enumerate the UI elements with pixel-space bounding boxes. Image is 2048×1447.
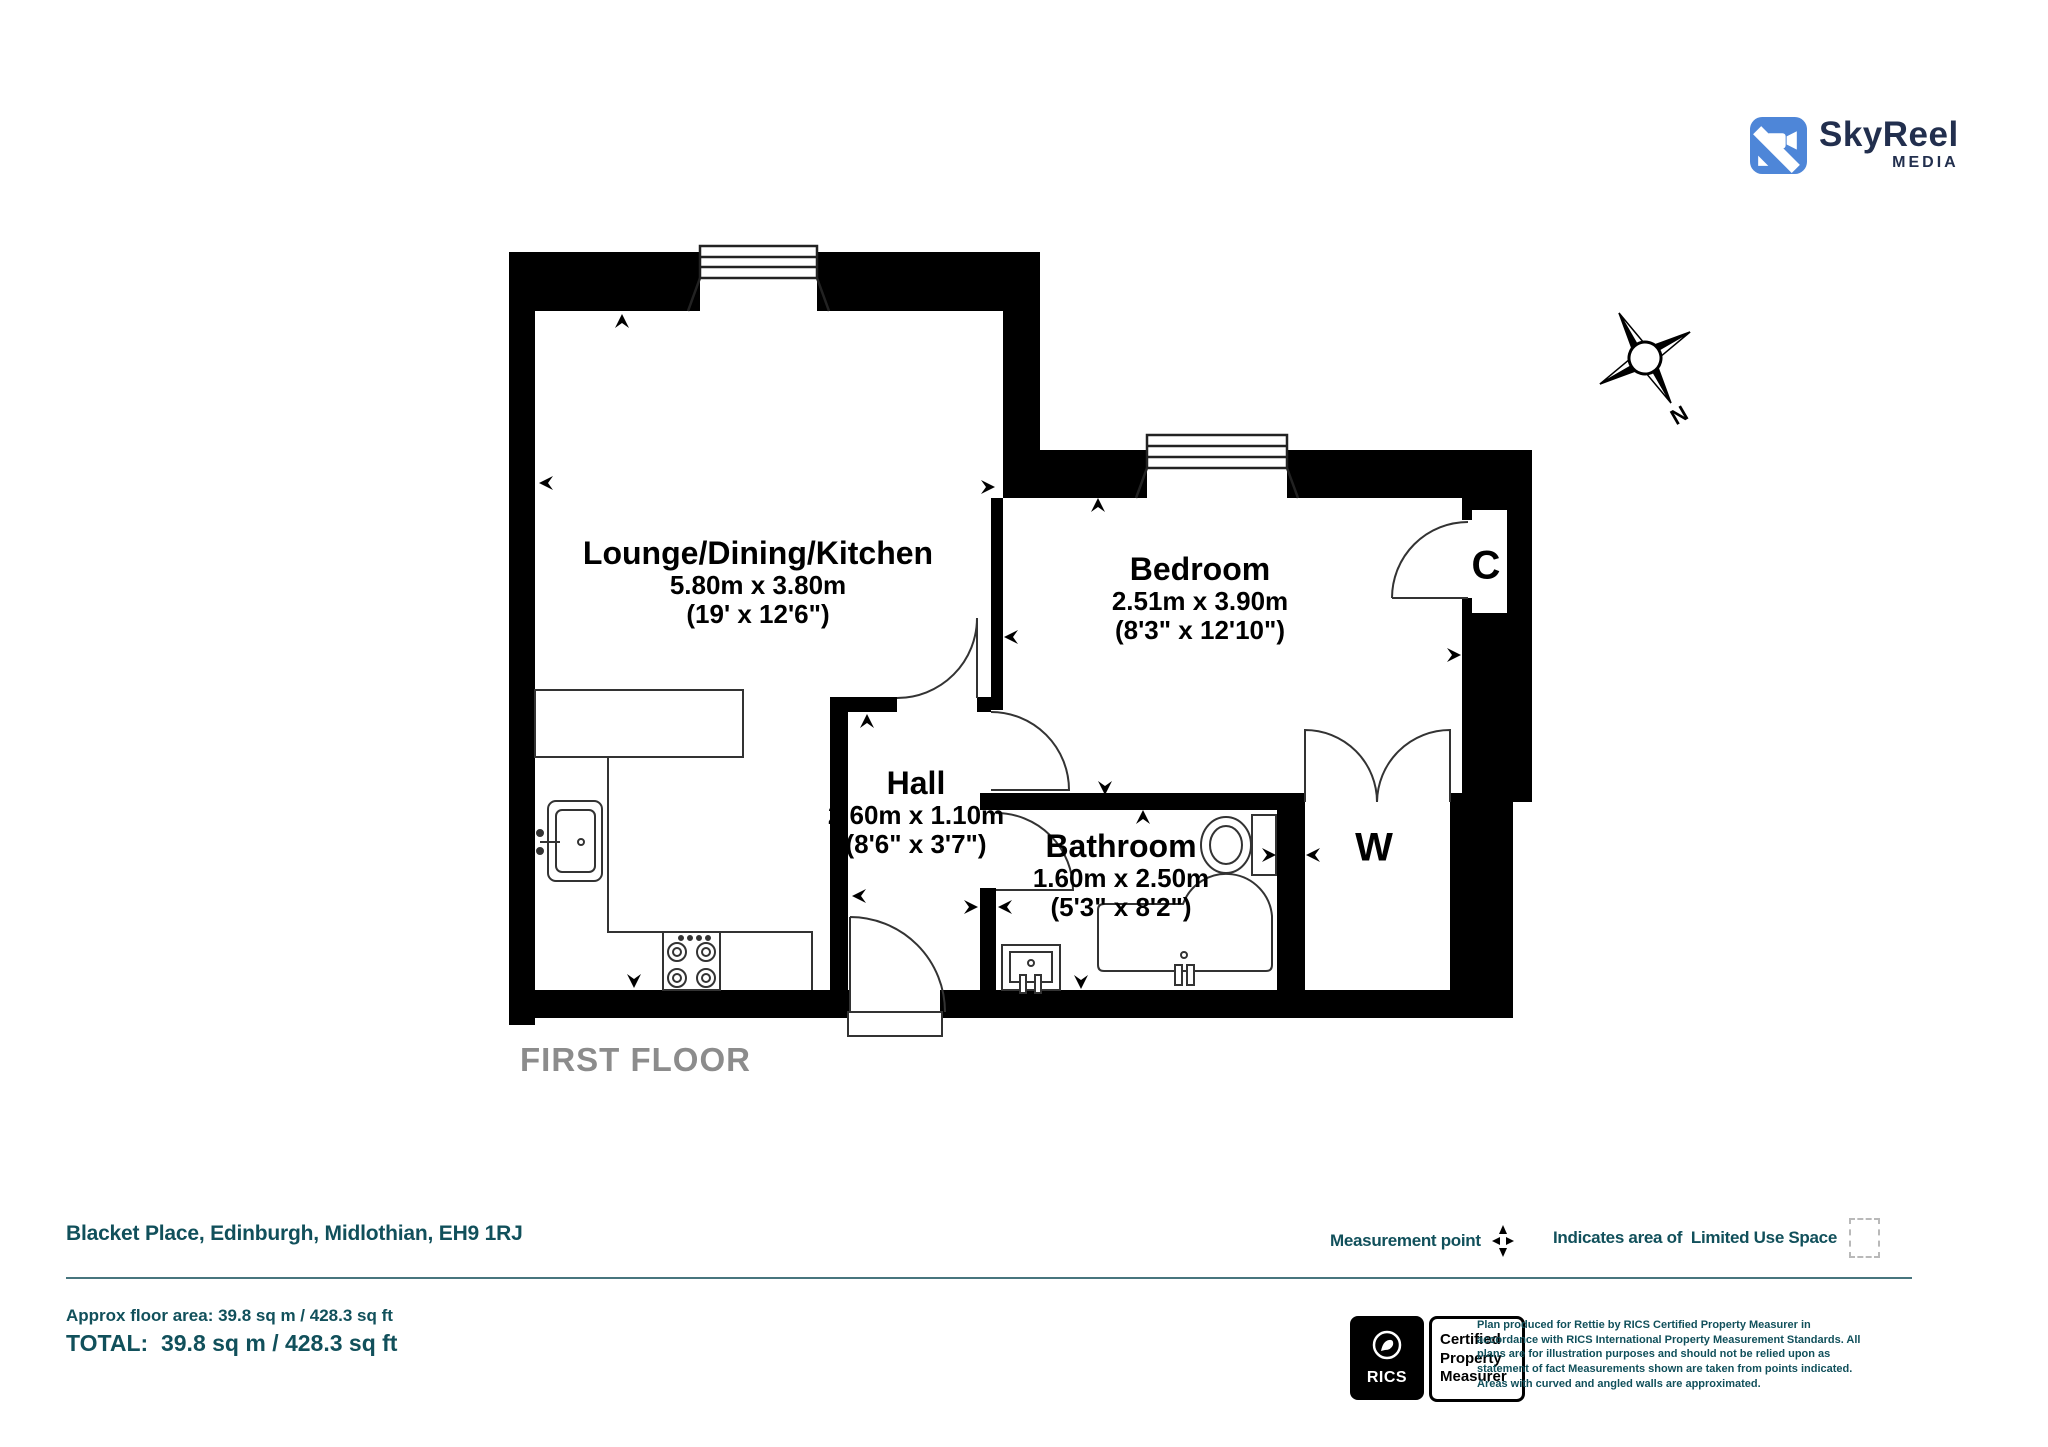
legend-limited-use: Indicates area of Limited Use Space: [1553, 1218, 1880, 1258]
wall-top-bedroom-left: [1003, 450, 1147, 498]
wall-hall-east-lower: [980, 888, 996, 990]
bedroom-window-icon: [1147, 435, 1287, 468]
entrance-threshold: [848, 1012, 942, 1036]
property-address: Blacket Place, Edinburgh, Midlothian, EH…: [66, 1222, 523, 1246]
wall-hall-top-right-stub: [977, 697, 991, 712]
room-dim-metric: 2.51m x 3.90m: [1112, 587, 1288, 616]
cupboard-label: C: [1472, 544, 1501, 589]
wall-left: [509, 252, 535, 1025]
room-dim-metric: 5.80m x 3.80m: [583, 571, 933, 600]
toilet-cistern-icon: [1252, 815, 1276, 875]
wall-right-lower: [1450, 793, 1513, 1013]
wall-top-bedroom-right: [1287, 450, 1532, 498]
plan-disclaimer: Plan produced for Rettie by RICS Certifi…: [1477, 1318, 1869, 1391]
limited-use-swatch: [1849, 1218, 1880, 1258]
wardrobe-door-right-icon: [1377, 730, 1450, 802]
room-name: Lounge/Dining/Kitchen: [583, 537, 933, 571]
room-dim-imperial: (8'3" x 12'10"): [1112, 616, 1288, 645]
room-dim-metric: 1.60m x 2.50m: [1033, 864, 1209, 893]
room-dim-metric: 2.60m x 1.10m: [828, 801, 1004, 830]
room-dim-imperial: (8'6" x 3'7"): [828, 830, 1004, 859]
wall-bathroom-east: [1277, 793, 1305, 990]
wall-lounge-bedroom-partition: [991, 498, 1003, 710]
kitchen-unit-icon: [535, 690, 743, 757]
cupboard-door-icon: [1392, 522, 1468, 598]
wardrobe-door-left-icon: [1305, 730, 1377, 802]
lounge-window-icon: [700, 246, 817, 278]
walls: [509, 252, 1532, 1025]
room-dim-imperial: (19' x 12'6"): [583, 600, 933, 629]
measurement-point-label: Measurement point: [1330, 1231, 1481, 1251]
skyreel-logo-icon: [1750, 117, 1807, 174]
lounge-hall-door-icon: [897, 618, 977, 698]
floorplan-page: N Lounge/Dining/Kitchen 5.80m x 3.80m (1…: [0, 0, 2048, 1447]
room-name: Hall: [828, 767, 1004, 801]
skyreel-logo: SkyReel MEDIA: [1750, 117, 1959, 174]
room-name: Bathroom: [1033, 830, 1209, 864]
wall-bottom-left: [509, 990, 850, 1018]
floor-label: FIRST FLOOR: [520, 1041, 751, 1079]
wardrobe-label: W: [1355, 826, 1393, 871]
kitchen-counter-icon: [608, 757, 812, 990]
wall-bathroom-top: [980, 793, 1277, 810]
footer-separator: [66, 1277, 1912, 1279]
wall-hall-top-left-stub: [830, 697, 897, 712]
hob-icon: [663, 932, 720, 990]
wall-right-mid: [1462, 613, 1532, 802]
legend-measurement-point: Measurement point: [1330, 1224, 1517, 1258]
measurement-point-icon: [1489, 1224, 1517, 1258]
skyreel-logo-text: SkyReel MEDIA: [1819, 117, 1959, 172]
room-label-lounge: Lounge/Dining/Kitchen 5.80m x 3.80m (19'…: [583, 537, 933, 629]
logo-sub: MEDIA: [1892, 154, 1959, 172]
wall-bottom-right: [940, 990, 1513, 1018]
compass-north-label: N: [1666, 400, 1692, 430]
limited-use-label: Indicates area of Limited Use Space: [1553, 1228, 1837, 1248]
room-name: Bedroom: [1112, 553, 1288, 587]
rics-logo: RICS: [1350, 1316, 1424, 1400]
room-dim-imperial: (5'3" x 8'2"): [1033, 893, 1209, 922]
room-label-bathroom: Bathroom 1.60m x 2.50m (5'3" x 8'2"): [1033, 830, 1209, 922]
rics-lion-icon: [1370, 1329, 1404, 1365]
logo-name: SkyReel: [1819, 117, 1959, 152]
rics-brand-label: RICS: [1367, 1369, 1407, 1387]
kitchen-fixtures: [535, 690, 812, 990]
entrance-door-icon: [850, 917, 945, 1012]
approx-floor-area: Approx floor area: 39.8 sq m / 428.3 sq …: [66, 1306, 393, 1326]
compass-icon: N: [1574, 287, 1730, 452]
room-label-hall: Hall 2.60m x 1.10m (8'6" x 3'7"): [828, 767, 1004, 859]
room-label-bedroom: Bedroom 2.51m x 3.90m (8'3" x 12'10"): [1112, 553, 1288, 645]
wall-top-lounge-left: [509, 252, 700, 311]
total-floor-area: TOTAL: 39.8 sq m / 428.3 sq ft: [66, 1330, 397, 1357]
